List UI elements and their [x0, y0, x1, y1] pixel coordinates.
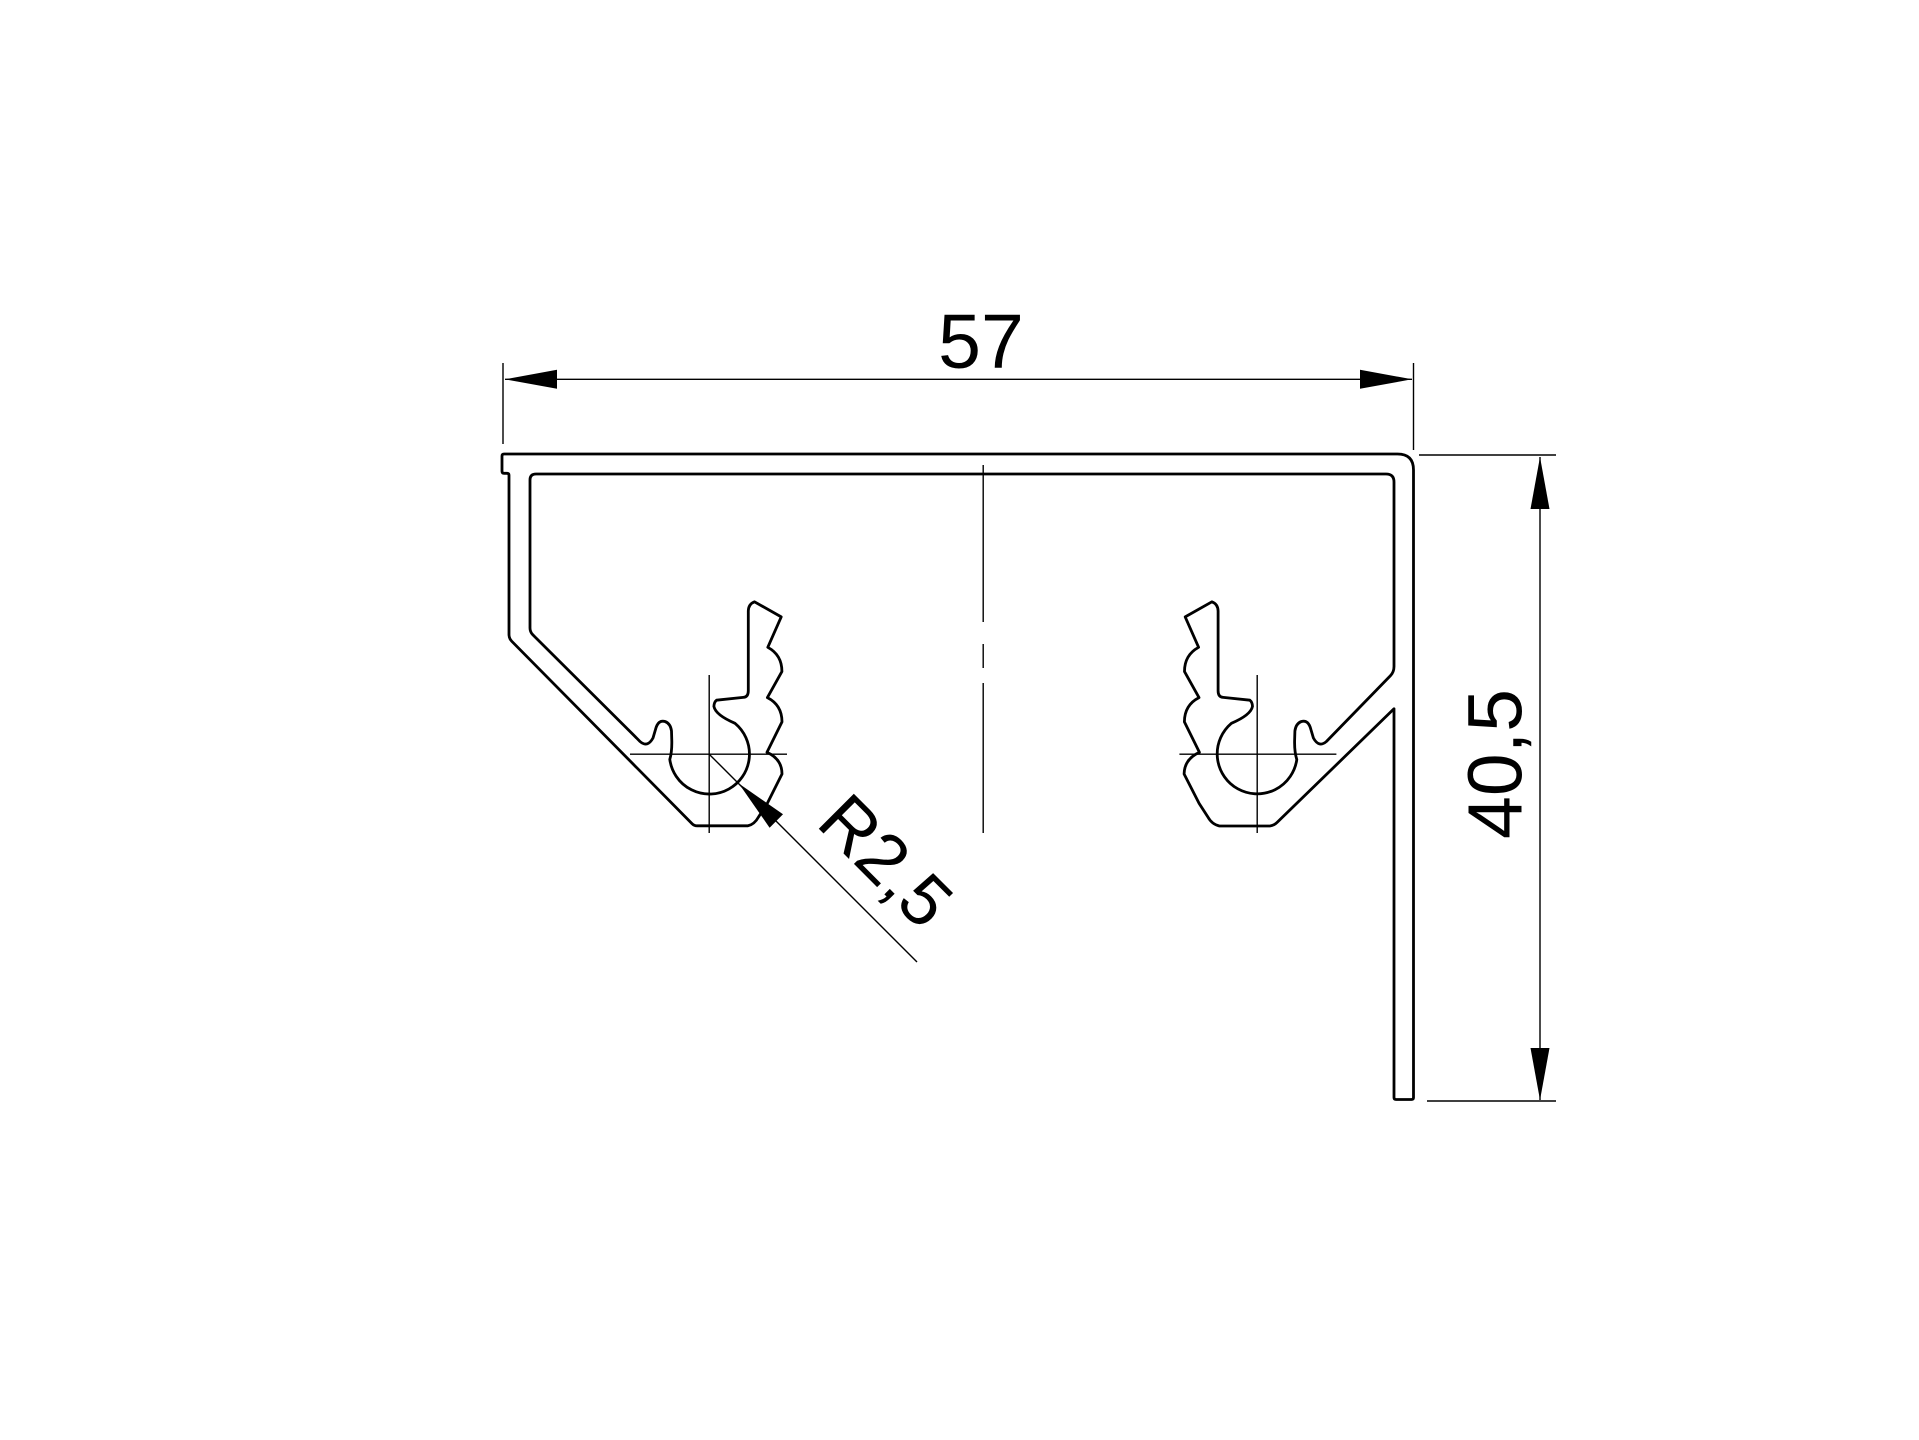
svg-text:57: 57: [938, 299, 1024, 385]
svg-text:40,5: 40,5: [1453, 689, 1539, 839]
